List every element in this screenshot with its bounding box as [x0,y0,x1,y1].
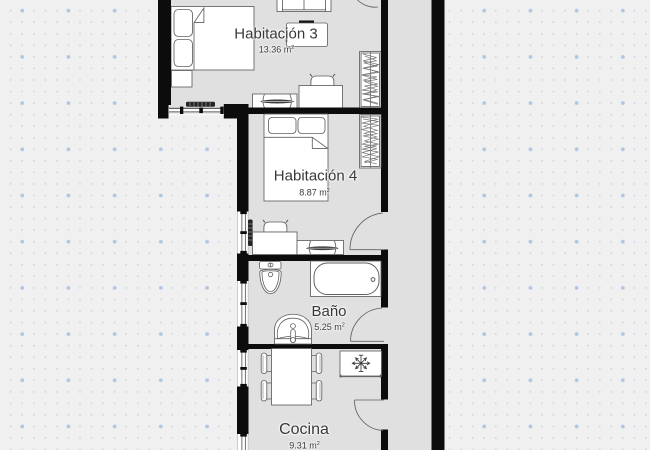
svg-text:Baño: Baño [311,303,346,320]
svg-text:Habitación 4: Habitación 4 [274,167,357,184]
svg-text:8.87 m2: 8.87 m2 [299,187,330,197]
svg-text:Habitación 3: Habitación 3 [234,25,317,42]
svg-text:13.36 m2: 13.36 m2 [259,44,295,54]
svg-text:9.31 m2: 9.31 m2 [289,440,320,450]
svg-text:5.25 m2: 5.25 m2 [314,322,345,332]
svg-text:Cocina: Cocina [279,421,329,438]
